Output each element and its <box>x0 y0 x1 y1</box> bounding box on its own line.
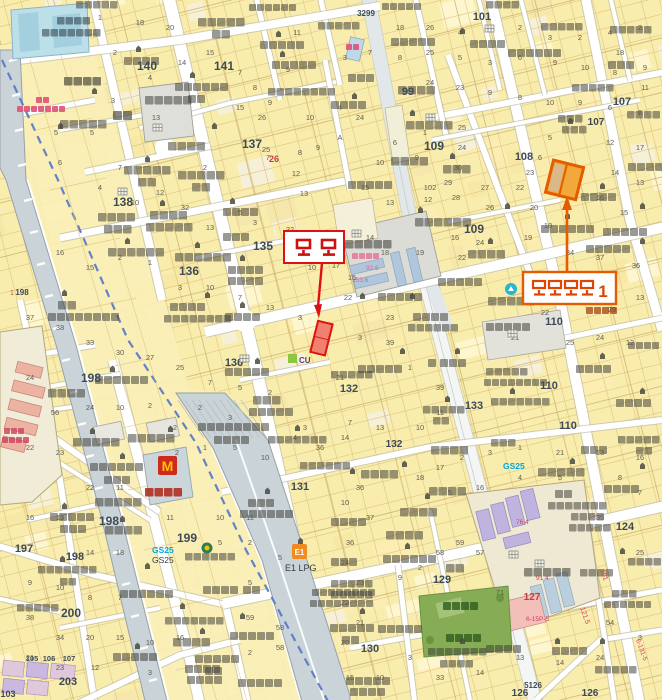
svg-text:3: 3 <box>253 218 257 227</box>
svg-text:54: 54 <box>606 618 614 627</box>
svg-text:12: 12 <box>292 169 300 178</box>
svg-text:1: 1 <box>148 258 152 267</box>
svg-text:18: 18 <box>616 48 624 57</box>
svg-text:11: 11 <box>436 408 444 417</box>
svg-text:17: 17 <box>436 463 444 472</box>
svg-text:29: 29 <box>608 305 616 314</box>
svg-text:15: 15 <box>116 633 124 642</box>
svg-text:14: 14 <box>611 168 619 177</box>
svg-text:23: 23 <box>456 83 464 92</box>
svg-text:9: 9 <box>643 63 647 72</box>
svg-text:6: 6 <box>58 158 62 167</box>
svg-text:2: 2 <box>518 23 522 32</box>
svg-text:10: 10 <box>376 158 384 167</box>
svg-text:23: 23 <box>526 168 534 177</box>
svg-text:8: 8 <box>518 93 522 102</box>
svg-text:10: 10 <box>56 583 64 592</box>
svg-text:3: 3 <box>548 33 552 42</box>
svg-text:58: 58 <box>276 643 284 652</box>
svg-text:92.6: 92.6 <box>366 265 379 272</box>
svg-text:13: 13 <box>636 178 644 187</box>
svg-text:3: 3 <box>148 668 152 677</box>
svg-text:16: 16 <box>596 193 604 202</box>
svg-text:10: 10 <box>261 453 269 462</box>
svg-text:99: 99 <box>402 86 414 98</box>
svg-text:10: 10 <box>131 198 139 207</box>
svg-text:135: 135 <box>253 239 273 253</box>
svg-text:23: 23 <box>356 578 364 587</box>
svg-text:25: 25 <box>636 548 644 557</box>
svg-text:137: 137 <box>242 137 262 151</box>
svg-text:36: 36 <box>632 261 640 270</box>
svg-text:127: 127 <box>524 592 541 603</box>
svg-text:39: 39 <box>436 383 444 392</box>
svg-text:32: 32 <box>181 203 189 212</box>
svg-text:11: 11 <box>246 513 254 522</box>
svg-text:20: 20 <box>341 638 349 647</box>
svg-text:133: 133 <box>465 400 483 412</box>
svg-text:9: 9 <box>316 143 320 152</box>
svg-text:7: 7 <box>208 378 212 387</box>
svg-text:10: 10 <box>581 63 589 72</box>
svg-text:2: 2 <box>148 401 152 410</box>
svg-text:11: 11 <box>116 483 124 492</box>
svg-text:2: 2 <box>113 48 117 57</box>
svg-text:8: 8 <box>618 473 622 482</box>
svg-text:1: 1 <box>408 363 412 372</box>
svg-text:5: 5 <box>233 443 237 452</box>
svg-text:3: 3 <box>343 53 347 62</box>
svg-text:29: 29 <box>444 178 452 187</box>
svg-text:6: 6 <box>608 103 612 112</box>
svg-text:12: 12 <box>626 338 634 347</box>
svg-text:34: 34 <box>56 633 64 642</box>
svg-text:25: 25 <box>426 48 434 57</box>
svg-text:8: 8 <box>638 108 642 117</box>
svg-text:16: 16 <box>56 248 64 257</box>
svg-text:6: 6 <box>538 153 542 162</box>
svg-text:15: 15 <box>86 263 94 272</box>
svg-text:22: 22 <box>341 598 349 607</box>
svg-text:26: 26 <box>486 203 494 212</box>
svg-text:20: 20 <box>530 203 538 212</box>
svg-text:16: 16 <box>176 633 184 642</box>
svg-text:18: 18 <box>396 23 404 32</box>
svg-text:199: 199 <box>177 531 197 545</box>
svg-text:107: 107 <box>613 96 631 108</box>
svg-text:26: 26 <box>426 23 434 32</box>
svg-text:21: 21 <box>26 653 34 662</box>
svg-text:37: 37 <box>596 253 604 262</box>
svg-text:10: 10 <box>216 513 224 522</box>
svg-text:102: 102 <box>424 183 437 192</box>
svg-text:101: 101 <box>473 11 491 23</box>
svg-text:37: 37 <box>26 313 34 322</box>
svg-text:109: 109 <box>464 222 484 236</box>
svg-text:1: 1 <box>518 443 522 452</box>
svg-text:110: 110 <box>559 420 577 432</box>
svg-text:198: 198 <box>15 288 29 297</box>
svg-text:E1 LPG: E1 LPG <box>285 563 317 573</box>
svg-text:18: 18 <box>381 248 389 257</box>
svg-text:1: 1 <box>203 443 207 452</box>
svg-text:5: 5 <box>54 128 58 137</box>
svg-text:2: 2 <box>268 388 272 397</box>
svg-text:14: 14 <box>86 548 94 557</box>
svg-text:200: 200 <box>61 606 81 620</box>
svg-text:10: 10 <box>341 498 349 507</box>
svg-text:9: 9 <box>268 98 272 107</box>
svg-text:2: 2 <box>203 163 207 172</box>
svg-text:2: 2 <box>578 33 582 42</box>
svg-text:9: 9 <box>553 58 557 67</box>
svg-text:23: 23 <box>386 313 394 322</box>
svg-text:38: 38 <box>56 323 64 332</box>
svg-text:1: 1 <box>423 128 427 137</box>
svg-text:103: 103 <box>0 689 15 699</box>
svg-text:GS25: GS25 <box>152 555 174 565</box>
svg-text:4: 4 <box>338 103 342 112</box>
svg-text:5: 5 <box>458 53 462 62</box>
svg-text:5: 5 <box>548 133 552 142</box>
svg-text:37: 37 <box>366 513 374 522</box>
svg-text:GS25: GS25 <box>503 461 525 471</box>
svg-text:1: 1 <box>10 290 14 297</box>
svg-text:12: 12 <box>424 195 432 204</box>
svg-text:8: 8 <box>88 593 92 602</box>
svg-text:24: 24 <box>356 113 364 122</box>
svg-text:5: 5 <box>278 553 282 562</box>
svg-text:E1: E1 <box>295 548 305 557</box>
svg-text:15: 15 <box>236 103 244 112</box>
svg-text:GS25: GS25 <box>152 545 174 555</box>
svg-text:9: 9 <box>488 88 492 97</box>
svg-text:203: 203 <box>59 676 77 688</box>
svg-text:2: 2 <box>460 453 464 462</box>
svg-text:2: 2 <box>248 538 252 547</box>
svg-text:18: 18 <box>544 221 552 230</box>
svg-text:22: 22 <box>458 253 466 262</box>
svg-text:14: 14 <box>476 668 484 677</box>
svg-text:110: 110 <box>545 316 563 328</box>
svg-text:2: 2 <box>638 23 642 32</box>
svg-text:129: 129 <box>433 574 451 586</box>
svg-text:23: 23 <box>56 448 64 457</box>
svg-text:57: 57 <box>476 548 484 557</box>
svg-text:33: 33 <box>86 338 94 347</box>
svg-text:3: 3 <box>111 96 115 105</box>
svg-text:A: A <box>337 133 342 142</box>
svg-text:13: 13 <box>206 223 214 232</box>
svg-text:8: 8 <box>253 83 257 92</box>
svg-text:16: 16 <box>636 453 644 462</box>
svg-text:56: 56 <box>51 408 59 417</box>
svg-text:5: 5 <box>448 488 452 497</box>
svg-text:10: 10 <box>308 263 316 272</box>
svg-text:22: 22 <box>344 293 352 302</box>
svg-text:140: 140 <box>137 59 157 73</box>
svg-text:58: 58 <box>276 623 284 632</box>
svg-text:5: 5 <box>238 383 242 392</box>
svg-text:4: 4 <box>518 473 522 482</box>
svg-text:24: 24 <box>596 653 604 662</box>
svg-text:38: 38 <box>26 613 34 622</box>
svg-text:136: 136 <box>179 264 199 278</box>
svg-text:76.4: 76.4 <box>516 519 529 526</box>
svg-text:14: 14 <box>366 233 374 242</box>
svg-text:12: 12 <box>606 138 614 147</box>
svg-text:7: 7 <box>118 163 122 172</box>
svg-text:22: 22 <box>516 183 524 192</box>
svg-text:13: 13 <box>596 448 604 457</box>
svg-text:22: 22 <box>26 443 34 452</box>
svg-text:21: 21 <box>336 373 344 382</box>
svg-text:2: 2 <box>175 448 179 457</box>
svg-text:8: 8 <box>398 53 402 62</box>
svg-text:1: 1 <box>98 13 102 22</box>
svg-text:7: 7 <box>238 68 242 77</box>
svg-text:7: 7 <box>266 153 270 162</box>
svg-text:20: 20 <box>166 23 174 32</box>
svg-text:26: 26 <box>258 113 266 122</box>
svg-text:3: 3 <box>178 283 182 292</box>
svg-text:13: 13 <box>386 198 394 207</box>
svg-text:12: 12 <box>91 663 99 672</box>
svg-text:19: 19 <box>416 248 424 257</box>
svg-text:10: 10 <box>376 673 384 682</box>
svg-text:4: 4 <box>293 433 297 442</box>
svg-text:18: 18 <box>416 473 424 482</box>
svg-text:36: 36 <box>316 443 324 452</box>
svg-text:25: 25 <box>176 363 184 372</box>
svg-text:59: 59 <box>246 613 254 622</box>
svg-text:2: 2 <box>418 563 422 572</box>
svg-text:6: 6 <box>393 138 397 147</box>
svg-text:10: 10 <box>416 423 424 432</box>
svg-text:7: 7 <box>638 488 642 497</box>
svg-text:13: 13 <box>376 423 384 432</box>
svg-text:20: 20 <box>86 633 94 642</box>
svg-text:30: 30 <box>116 348 124 357</box>
svg-text:15: 15 <box>206 48 214 57</box>
svg-text:21: 21 <box>356 618 364 627</box>
svg-text:4: 4 <box>608 28 612 37</box>
svg-text:7: 7 <box>118 593 122 602</box>
svg-text:11: 11 <box>293 28 301 37</box>
svg-text:11: 11 <box>641 83 649 92</box>
svg-text:12: 12 <box>156 188 164 197</box>
svg-text:198: 198 <box>66 551 84 563</box>
svg-text:91.4: 91.4 <box>536 575 549 582</box>
svg-text:39: 39 <box>386 338 394 347</box>
svg-text:197: 197 <box>15 543 33 555</box>
svg-text:15: 15 <box>620 208 628 217</box>
svg-text:13: 13 <box>516 653 524 662</box>
svg-text:CU: CU <box>299 356 311 365</box>
svg-text:36: 36 <box>356 483 364 492</box>
svg-text:23: 23 <box>56 663 64 672</box>
svg-text:13: 13 <box>152 113 160 122</box>
svg-text:24: 24 <box>341 558 349 567</box>
svg-text:22: 22 <box>86 483 94 492</box>
svg-text:106: 106 <box>43 654 56 663</box>
svg-text:14: 14 <box>178 58 186 67</box>
svg-text:24: 24 <box>476 238 484 247</box>
svg-text:132: 132 <box>340 383 358 395</box>
svg-text:5: 5 <box>90 128 94 137</box>
svg-text:24: 24 <box>596 333 604 342</box>
svg-text:11: 11 <box>166 513 174 522</box>
svg-text:17: 17 <box>636 143 644 152</box>
svg-text:25: 25 <box>458 123 466 132</box>
svg-text:3: 3 <box>303 423 307 432</box>
svg-text:3: 3 <box>488 58 492 67</box>
svg-text:9: 9 <box>286 65 290 74</box>
svg-text:109: 109 <box>424 139 444 153</box>
svg-text:198: 198 <box>99 514 119 528</box>
svg-text:3299: 3299 <box>357 9 375 18</box>
svg-text:5: 5 <box>558 473 562 482</box>
svg-text:5: 5 <box>248 578 252 587</box>
svg-text:28: 28 <box>452 193 460 202</box>
svg-text:8: 8 <box>613 68 617 77</box>
svg-text:9: 9 <box>398 573 402 582</box>
svg-text:4: 4 <box>98 183 102 192</box>
svg-text:5: 5 <box>238 208 242 217</box>
svg-text:15: 15 <box>346 673 354 682</box>
svg-text:107: 107 <box>588 117 605 128</box>
svg-text:16: 16 <box>451 233 459 242</box>
svg-text:2: 2 <box>173 423 177 432</box>
svg-text:33: 33 <box>436 673 444 682</box>
svg-text:59: 59 <box>456 538 464 547</box>
svg-text:130: 130 <box>361 643 379 655</box>
svg-text:16: 16 <box>26 513 34 522</box>
svg-text:24: 24 <box>86 403 94 412</box>
svg-text:7: 7 <box>348 418 352 427</box>
svg-text:3: 3 <box>358 333 362 342</box>
svg-text:6-15P-5: 6-15P-5 <box>526 616 550 623</box>
svg-text:124: 124 <box>616 521 635 533</box>
svg-text:24: 24 <box>426 78 434 87</box>
svg-text:126: 126 <box>582 688 599 699</box>
svg-text:25: 25 <box>262 145 270 154</box>
svg-text:13: 13 <box>300 189 308 198</box>
svg-text:7: 7 <box>368 48 372 57</box>
svg-text:25: 25 <box>566 338 574 347</box>
svg-text:132: 132 <box>386 439 403 450</box>
svg-text:4: 4 <box>148 73 152 82</box>
svg-text:13: 13 <box>56 513 64 522</box>
svg-text:27: 27 <box>481 183 489 192</box>
svg-text:9: 9 <box>415 153 419 162</box>
svg-text:10: 10 <box>146 638 154 647</box>
svg-text:5: 5 <box>218 538 222 547</box>
svg-text:7: 7 <box>238 293 242 302</box>
svg-text:9: 9 <box>578 98 582 107</box>
svg-text:2: 2 <box>198 403 202 412</box>
svg-text:1: 1 <box>598 282 607 301</box>
svg-text:10: 10 <box>206 283 214 292</box>
svg-text:6: 6 <box>518 53 522 62</box>
svg-text:8: 8 <box>298 148 302 157</box>
svg-text:10: 10 <box>116 403 124 412</box>
svg-text:19: 19 <box>524 233 532 242</box>
svg-text:131: 131 <box>291 481 309 493</box>
svg-text:35: 35 <box>596 513 604 522</box>
svg-text:24: 24 <box>26 373 34 382</box>
svg-text:153.6: 153.6 <box>352 277 369 284</box>
svg-text:58: 58 <box>436 548 444 557</box>
svg-text:3: 3 <box>488 448 492 457</box>
svg-text:13: 13 <box>636 293 644 302</box>
svg-text:36: 36 <box>346 538 354 547</box>
svg-text:26: 26 <box>269 154 279 164</box>
svg-text:2: 2 <box>248 648 252 657</box>
svg-text:15: 15 <box>361 183 369 192</box>
svg-text:24: 24 <box>458 143 466 152</box>
svg-text:126: 126 <box>512 688 529 699</box>
svg-text:9: 9 <box>28 578 32 587</box>
svg-text:10: 10 <box>546 98 554 107</box>
svg-text:198: 198 <box>81 371 101 385</box>
svg-text:14: 14 <box>341 433 349 442</box>
svg-text:13: 13 <box>266 303 274 312</box>
svg-text:21: 21 <box>556 448 564 457</box>
svg-text:107: 107 <box>63 654 76 663</box>
svg-text:27: 27 <box>146 353 154 362</box>
svg-text:141: 141 <box>214 59 234 73</box>
svg-text:16: 16 <box>476 483 484 492</box>
svg-text:M: M <box>162 458 174 474</box>
svg-text:18: 18 <box>136 18 144 27</box>
svg-text:22: 22 <box>541 308 549 317</box>
svg-text:2: 2 <box>118 253 122 262</box>
svg-text:18: 18 <box>116 548 124 557</box>
svg-text:108: 108 <box>515 151 533 163</box>
svg-text:71: 71 <box>496 588 504 597</box>
svg-text:3: 3 <box>408 653 412 662</box>
svg-text:14: 14 <box>556 658 564 667</box>
svg-text:3: 3 <box>228 413 232 422</box>
svg-text:30: 30 <box>454 163 462 172</box>
svg-text:110: 110 <box>540 380 558 392</box>
svg-text:10: 10 <box>306 113 314 122</box>
svg-text:3: 3 <box>298 313 302 322</box>
